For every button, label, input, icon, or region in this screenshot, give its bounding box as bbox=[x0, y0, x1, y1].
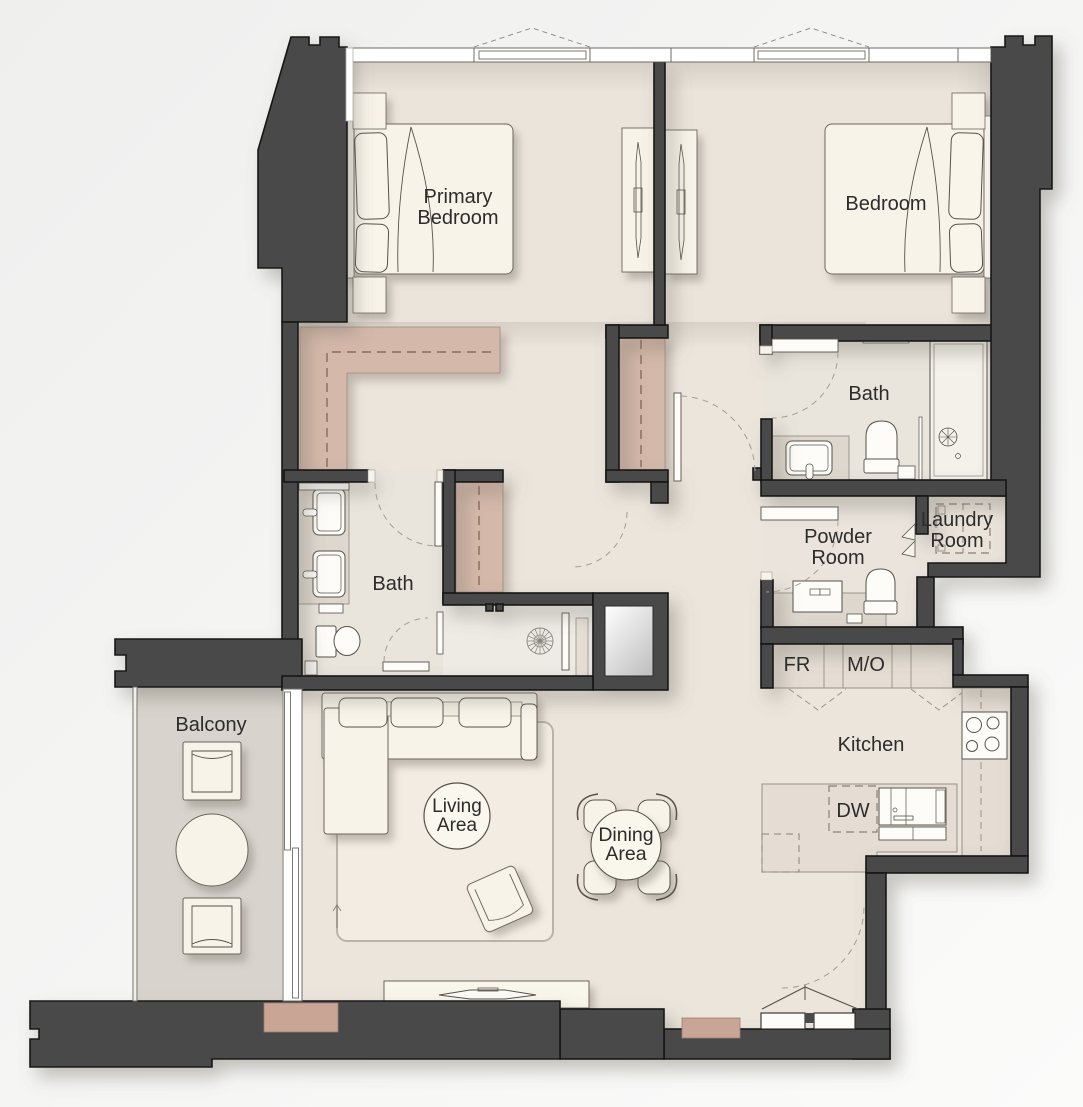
svg-text:Primary: Primary bbox=[424, 186, 493, 208]
svg-text:Laundry: Laundry bbox=[921, 509, 993, 531]
svg-text:Room: Room bbox=[811, 547, 864, 569]
svg-text:Area: Area bbox=[437, 815, 478, 836]
svg-text:Bedroom: Bedroom bbox=[417, 207, 498, 229]
svg-text:FR: FR bbox=[784, 654, 811, 676]
svg-text:Bedroom: Bedroom bbox=[845, 193, 926, 215]
svg-text:Powder: Powder bbox=[804, 526, 872, 548]
svg-text:Balcony: Balcony bbox=[175, 714, 246, 736]
svg-text:Room: Room bbox=[930, 530, 983, 552]
svg-text:DW: DW bbox=[836, 800, 869, 822]
svg-text:M/O: M/O bbox=[847, 654, 885, 676]
svg-text:Kitchen: Kitchen bbox=[838, 734, 905, 756]
svg-text:Area: Area bbox=[605, 843, 646, 865]
svg-text:Bath: Bath bbox=[372, 573, 413, 595]
svg-text:Living: Living bbox=[432, 796, 482, 817]
svg-text:Bath: Bath bbox=[848, 383, 889, 405]
